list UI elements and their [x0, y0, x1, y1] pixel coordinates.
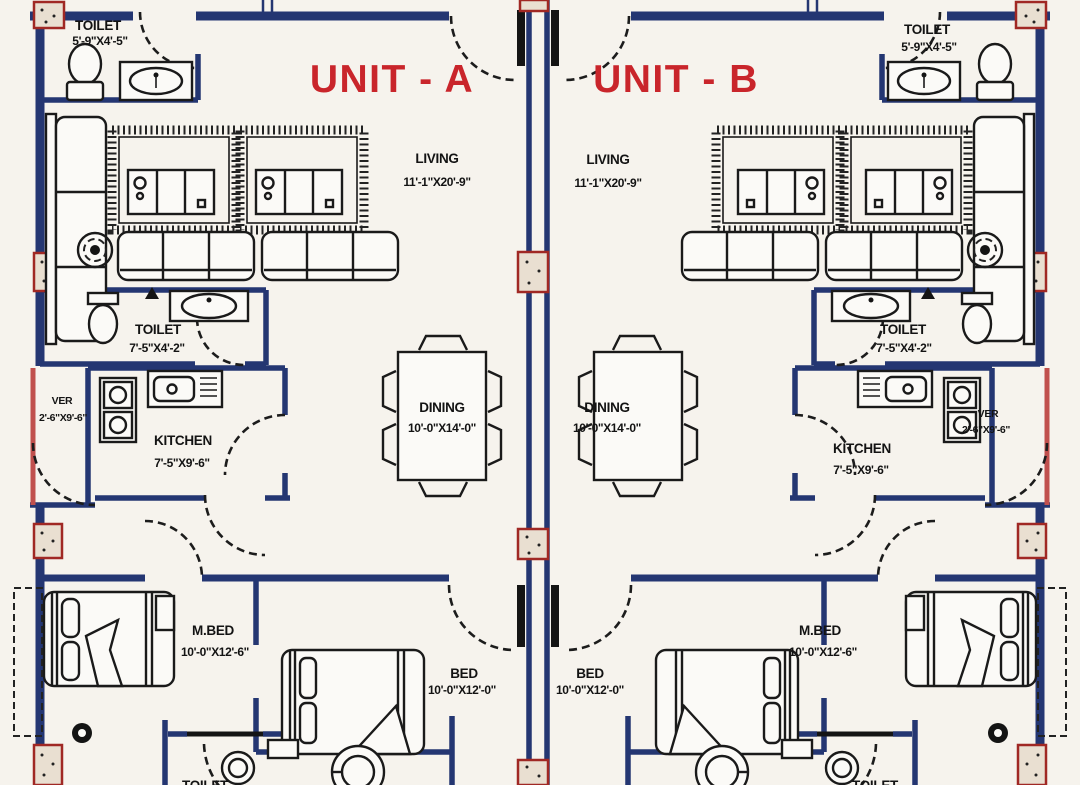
room-dims: 10'-0"X12'-6" — [181, 645, 249, 659]
dining-set — [383, 336, 501, 496]
chair — [488, 424, 501, 465]
room-label: TOILET — [135, 322, 182, 337]
room-dims: 2'-6"X9'-6" — [39, 412, 87, 424]
room-label: DINING — [584, 400, 629, 415]
door-jamb — [517, 10, 525, 66]
unit-a-title: UNIT - A — [310, 58, 474, 101]
room-label: VER — [978, 408, 999, 420]
room-dims: 11'-1"X20'-9" — [574, 176, 641, 190]
room-label: LIVING — [415, 151, 458, 166]
stool — [268, 740, 298, 758]
chair — [488, 371, 501, 412]
duplex-floor-plan: UNIT - A UNIT - B TOILET 5'-9"X4'-5" TOI… — [0, 0, 1080, 785]
wc-icon — [69, 44, 101, 84]
unit-b-geometry — [565, 0, 1066, 785]
toilet-top-fixtures — [67, 44, 192, 100]
chair — [383, 371, 396, 412]
pillow — [62, 642, 79, 680]
wc-icon — [332, 746, 384, 785]
room-dims: 7'-5"X4'-2" — [129, 341, 184, 355]
room-label: TOILET — [852, 778, 899, 785]
room-label: VER — [52, 395, 73, 407]
sofa-horizontal — [118, 232, 254, 280]
chair — [419, 336, 467, 350]
floor-plan-drawing: UNIT - A UNIT - B TOILET 5'-9"X4'-5" TOI… — [0, 0, 1080, 785]
room-label: LIVING — [586, 152, 629, 167]
unit-a-geometry — [14, 0, 515, 785]
room-dims: 10'-0"X12'-0" — [428, 683, 496, 697]
room-label: KITCHEN — [154, 433, 212, 448]
sofa-back — [46, 114, 56, 344]
unit-b-title: UNIT - B — [593, 58, 759, 101]
chair — [419, 482, 467, 496]
room-label: M.BED — [192, 623, 235, 638]
room-label: TOILET — [904, 22, 951, 37]
door-jamb — [517, 585, 525, 647]
door-jamb — [551, 10, 559, 66]
center-party-wall — [517, 0, 559, 785]
door-jamb — [551, 585, 559, 647]
room-label: TOILET — [880, 322, 927, 337]
room-dims: 2'-6"X9'-6" — [962, 424, 1010, 436]
room-dims: 5'-9"X4'-5" — [72, 34, 127, 48]
pillow — [300, 703, 316, 743]
room-label: BED — [576, 666, 604, 681]
pillow — [300, 658, 316, 698]
bedroom-furniture — [268, 650, 424, 758]
dining-table — [398, 352, 486, 480]
side-table — [156, 596, 174, 630]
room-label: TOILET — [75, 18, 122, 33]
wc-icon — [89, 305, 117, 343]
room-dims: 10'-0"X12'-6" — [789, 645, 857, 659]
room-dims: 5'-9"X4'-5" — [901, 40, 956, 54]
kitchen-fixtures — [100, 371, 222, 442]
room-label: DINING — [419, 400, 464, 415]
room-dims: 7'-5"X4'-2" — [876, 341, 931, 355]
column-markers — [518, 0, 548, 785]
room-dims: 10'-0"X14'-0" — [573, 421, 641, 435]
room-dims: 11'-1"X20'-9" — [403, 175, 470, 189]
chair — [383, 424, 396, 465]
sofa-horizontal — [262, 232, 398, 280]
room-dims: 7'-5"X9'-6" — [833, 463, 888, 477]
room-label: M.BED — [799, 623, 842, 638]
room-dims: 10'-0"X12'-0" — [556, 683, 624, 697]
pillow — [62, 599, 79, 637]
room-dims: 10'-0"X14'-0" — [408, 421, 476, 435]
room-label: TOILET — [182, 778, 229, 785]
room-dims: 7'-5"X9'-6" — [154, 456, 209, 470]
room-label: KITCHEN — [833, 441, 891, 456]
room-label: BED — [450, 666, 478, 681]
